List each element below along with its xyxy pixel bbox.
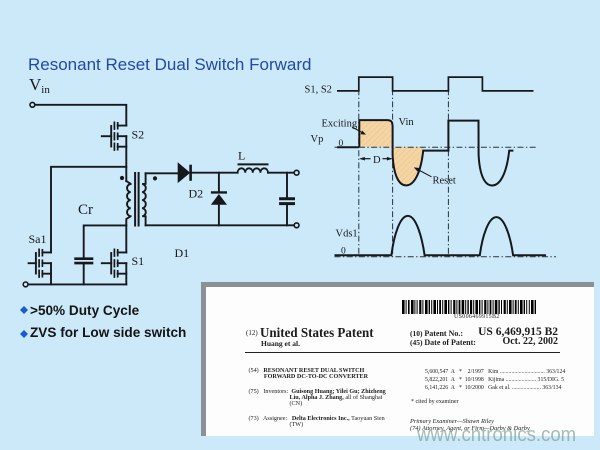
svg-text:Reset: Reset xyxy=(433,176,456,187)
svg-text:S1: S1 xyxy=(132,254,145,268)
svg-text:S2: S2 xyxy=(132,128,145,142)
svg-text:0: 0 xyxy=(341,247,346,257)
svg-text:D2: D2 xyxy=(189,187,204,201)
svg-text:Exciting: Exciting xyxy=(322,119,358,130)
svg-text:0: 0 xyxy=(339,139,344,149)
svg-text:L: L xyxy=(238,149,245,163)
svg-text:Vin: Vin xyxy=(29,75,50,96)
svg-text:D: D xyxy=(373,155,381,166)
svg-text:D1: D1 xyxy=(175,246,190,260)
svg-text:Cr: Cr xyxy=(78,202,93,218)
svg-text:Vp: Vp xyxy=(311,134,324,145)
svg-text:Vin: Vin xyxy=(399,117,415,128)
svg-text:S1, S2: S1, S2 xyxy=(305,85,332,96)
svg-text:Vds1: Vds1 xyxy=(336,229,358,240)
svg-text:Sa1: Sa1 xyxy=(29,232,47,246)
